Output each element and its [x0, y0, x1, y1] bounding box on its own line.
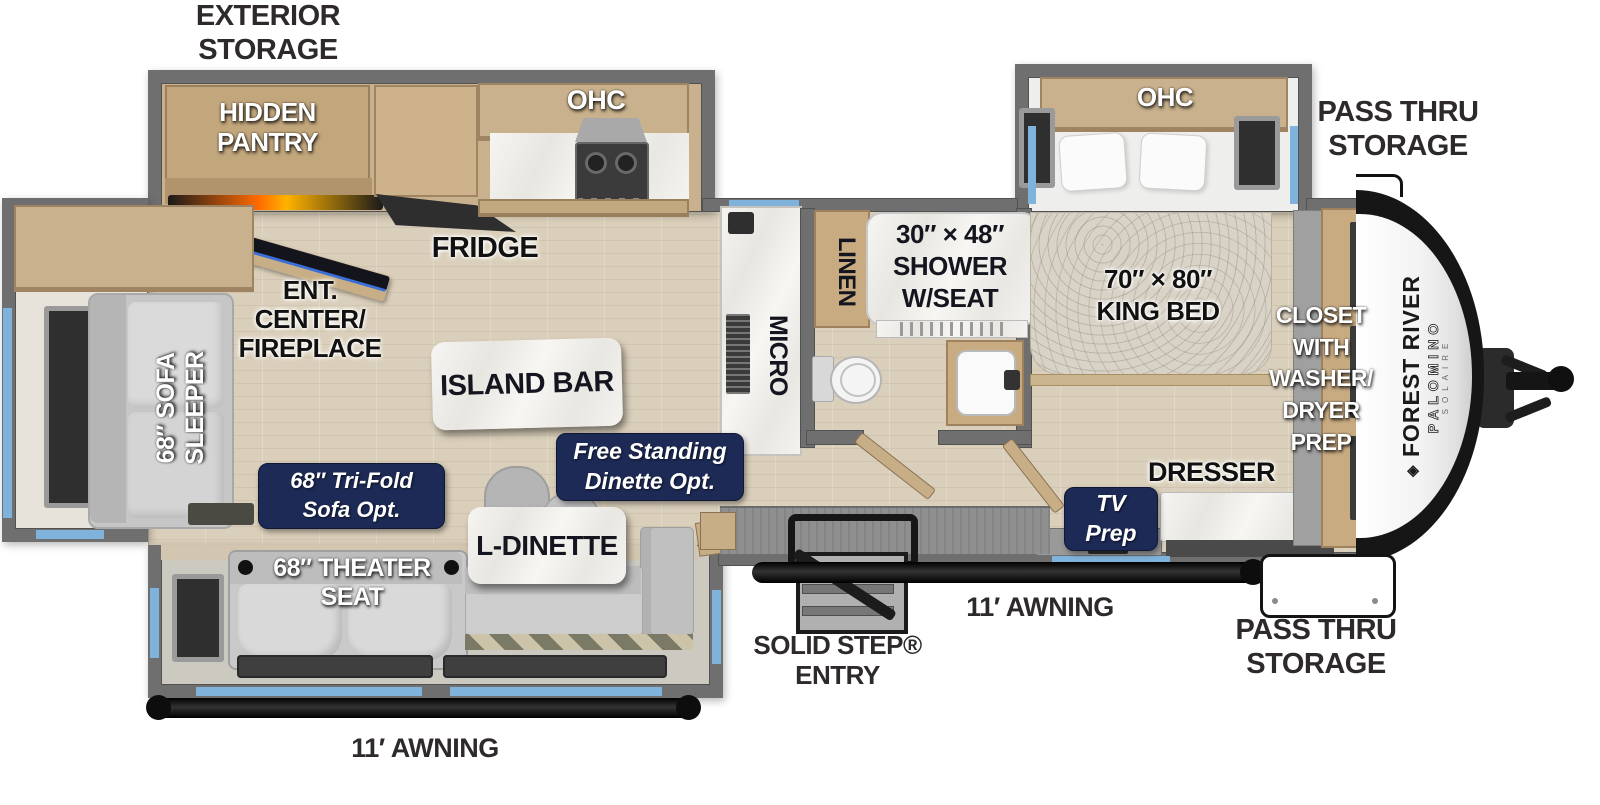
fridge-label: FRIDGE [423, 232, 547, 266]
awning-left-cap-l [146, 695, 171, 720]
pass-thru-top-label: PASS THRU STORAGE [1300, 96, 1496, 163]
hidden-pantry-label: HIDDEN PANTRY [175, 97, 360, 157]
sofa-slide-window-strip [3, 308, 12, 518]
theater-cupholder-left [238, 560, 253, 575]
theater-slide-window [172, 574, 224, 662]
dinette-stripe-mat [465, 634, 693, 650]
island-bar-label: ISLAND BAR [440, 365, 615, 403]
bedroom-slide-strip-left [1028, 126, 1036, 204]
l-dinette: L-DINETTE [468, 507, 626, 584]
awning-right-label: 11′ AWNING [940, 592, 1140, 623]
theater-cupholder-right [444, 560, 459, 575]
sink-faucet [1004, 370, 1020, 390]
awning-left-label: 11′ AWNING [350, 733, 500, 764]
rear-ohc-cabinet [14, 205, 254, 292]
theater-seat-label: 68″ THEATER SEAT [262, 554, 442, 612]
sofa-side-table [188, 503, 254, 525]
stove-burner-right [615, 152, 637, 174]
sofa-back [90, 295, 126, 523]
stove [575, 142, 649, 204]
entry-threshold [700, 512, 736, 550]
awning-right-bar [752, 562, 1258, 583]
bedroom-window-right [1234, 116, 1280, 190]
pass-thru-hatch [1260, 554, 1396, 618]
shower-drain-grate [900, 322, 1010, 336]
awning-left-cap-r [676, 695, 701, 720]
tv-prep-badge: TV Prep [1064, 487, 1158, 551]
micro-label: MICRO [752, 300, 792, 410]
floor-mat-left [237, 655, 433, 678]
theater-slide-strip-right [712, 590, 721, 664]
pass-thru-bottom-label: PASS THRU STORAGE [1228, 614, 1404, 681]
fridge-box [374, 85, 478, 197]
awning-left-bar [150, 698, 698, 718]
closet-label: CLOSET WITH WASHER/ DRYER PREP [1256, 300, 1386, 459]
bedroom-slide-strip-right [1290, 126, 1298, 204]
island-bar: ISLAND BAR [431, 338, 623, 431]
theater-slide-strip-bottom-b [450, 687, 662, 696]
freestanding-dinette-badge: Free Standing Dinette Opt. [556, 433, 744, 501]
shower-label: 30″ × 48″ SHOWER W/SEAT [870, 218, 1030, 315]
counter-end-panel [478, 199, 689, 217]
range-hood [575, 118, 647, 142]
stove-burner-left [585, 152, 607, 174]
solid-step-label: SOLID STEP® ENTRY [745, 630, 930, 690]
bedroom-window-left [1019, 108, 1055, 188]
theater-slide-strip-left [150, 588, 159, 658]
forest-river-logo: ◈ [1404, 464, 1421, 477]
pillow-right [1139, 132, 1208, 191]
front-cap-brand: ◈ FOREST RIVER PALOMINO SOLAIRE [1398, 261, 1450, 491]
microwave [726, 314, 750, 394]
linen-label: LINEN [826, 226, 860, 318]
sofa-slide-bottom-strip [36, 530, 104, 539]
sofa-slide-window [44, 306, 94, 508]
trifold-sofa-badge: 68″ Tri-Fold Sofa Opt. [258, 463, 445, 529]
kitchen-ohc-label: OHC [556, 85, 636, 116]
brand-model: PALOMINO [1425, 261, 1441, 491]
pillow-left [1058, 132, 1128, 192]
hatch-screw-left [1272, 598, 1278, 604]
bath-wall-bottom-b [938, 430, 1032, 445]
dresser-label: DRESSER [1148, 457, 1272, 488]
hitch-coupler [1548, 366, 1574, 392]
toilet-seat [840, 363, 876, 397]
sofa-sleeper-label: 68″ SOFA SLEEPER [152, 333, 208, 483]
king-bed-label: 70″ × 80″ KING BED [1068, 264, 1248, 327]
bedroom-ohc-label: OHC [1125, 82, 1205, 112]
bed-platform-edge [1030, 374, 1272, 386]
l-dinette-label: L-DINETTE [476, 530, 618, 562]
floor-mat-right [443, 655, 667, 678]
pass-thru-top-outline [1356, 174, 1403, 197]
brand-make: FOREST RIVER [1398, 275, 1424, 457]
coffee-maker [728, 212, 754, 234]
bath-wall-left [800, 208, 815, 448]
theater-slide-strip-bottom-a [196, 687, 422, 696]
hatch-screw-right [1372, 598, 1378, 604]
dinette-bench-back [640, 527, 694, 635]
brand-trim: SOLAIRE [1441, 261, 1450, 491]
exterior-storage-label: EXTERIOR STORAGE [168, 0, 368, 67]
floorplan-diagram: HIDDEN PANTRY OHC FRIDGE ENT. CENTER/ FI… [0, 0, 1600, 805]
